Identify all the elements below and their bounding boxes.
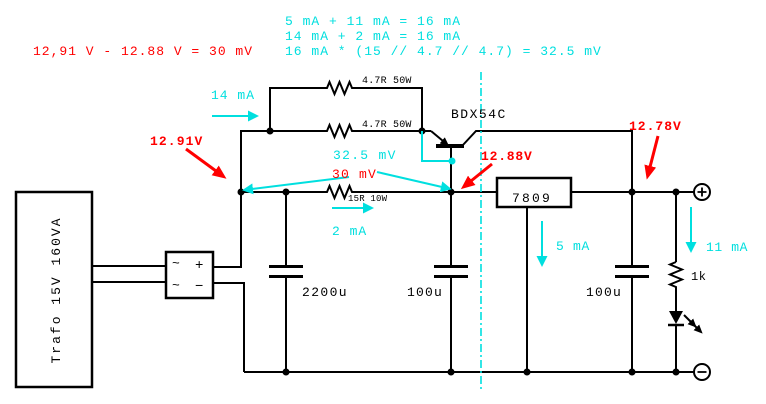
wire-bridge-minus-drop xyxy=(213,283,244,372)
led-triangle xyxy=(669,311,683,324)
label-v-input: 12.91V xyxy=(150,134,203,149)
label-bridge-ac-bottom: ~ xyxy=(172,278,180,293)
label-mv-calculated: 32.5 mV xyxy=(333,148,397,163)
node-dot xyxy=(524,369,531,376)
label-cap-reservoir: 2200u xyxy=(302,285,348,300)
node-dot xyxy=(629,369,636,376)
node-dot xyxy=(448,189,455,196)
positive-terminal-icon xyxy=(694,184,710,200)
negative-terminal-icon xyxy=(694,364,710,380)
label-v-output: 12.78V xyxy=(629,119,682,134)
wire-transformer-to-bridge xyxy=(92,266,166,282)
formula-sum-out: 5 mA + 11 mA = 16 mA xyxy=(285,14,461,29)
formula-voltage-drop: 12,91 V - 12.88 V = 30 mV xyxy=(33,44,253,59)
label-current-5ma: 5 mA xyxy=(556,239,590,254)
label-resistor-bypass-bottom: 4.7R 50W xyxy=(362,120,412,131)
node-dot xyxy=(673,189,680,196)
junction-dots xyxy=(238,128,680,376)
led-emission-arrow-2 xyxy=(690,321,697,328)
label-transistor: BDX54C xyxy=(451,107,507,122)
formula-sum-in: 14 mA + 2 mA = 16 mA xyxy=(285,29,461,44)
label-current-14ma: 14 mA xyxy=(211,88,255,103)
transistor-emitter-arrow xyxy=(431,131,443,141)
node-dot xyxy=(283,189,290,196)
schematic-svg: 12,91 V - 12.88 V = 30 mV 5 mA + 11 mA =… xyxy=(0,0,766,404)
label-mv-measured: 30 mV xyxy=(332,167,377,182)
label-resistor-bypass-top: 4.7R 50W xyxy=(362,76,412,87)
arrow-v-input xyxy=(186,149,216,171)
led-emission-arrow-1 xyxy=(684,315,691,322)
node-dot xyxy=(448,369,455,376)
text-labels: 12,91 V - 12.88 V = 30 mV 5 mA + 11 mA =… xyxy=(33,14,748,364)
cap-output-plates xyxy=(615,267,649,277)
label-transformer: Trafo 15V 160VA xyxy=(49,216,64,363)
node-dot xyxy=(267,128,274,135)
schematic-canvas: 12,91 V - 12.88 V = 30 mV 5 mA + 11 mA =… xyxy=(0,0,766,404)
wire-bridge-plus-riser xyxy=(213,131,270,267)
node-dot xyxy=(629,189,636,196)
label-bridge-minus: − xyxy=(195,279,203,295)
probe-dot xyxy=(449,158,456,165)
arrow-v-output xyxy=(650,136,658,167)
label-current-11ma: 11 mA xyxy=(706,240,748,255)
label-current-2ma: 2 mA xyxy=(332,224,367,239)
node-dot xyxy=(673,369,680,376)
label-v-regulator-in: 12.88V xyxy=(481,149,533,164)
arrow-v-regulator-in xyxy=(471,164,492,181)
label-resistor-sense: 15R 10W xyxy=(348,194,388,204)
label-bridge-plus: + xyxy=(195,258,203,274)
cap-reservoir-plates xyxy=(269,267,303,277)
label-cap-input: 100u xyxy=(407,285,443,300)
node-dot xyxy=(238,189,245,196)
label-resistor-led: 1k xyxy=(691,270,706,284)
node-dot xyxy=(283,369,290,376)
cap-input-plates xyxy=(434,267,468,277)
formula-product: 16 mA * (15 // 4.7 // 4.7) = 32.5 mV xyxy=(285,44,602,59)
label-cap-output: 100u xyxy=(586,285,622,300)
resistor-led-zigzag xyxy=(670,262,682,311)
label-regulator: 7809 xyxy=(512,191,552,206)
arrow-measure-right xyxy=(377,172,442,187)
label-bridge-ac-top: ~ xyxy=(172,256,180,271)
